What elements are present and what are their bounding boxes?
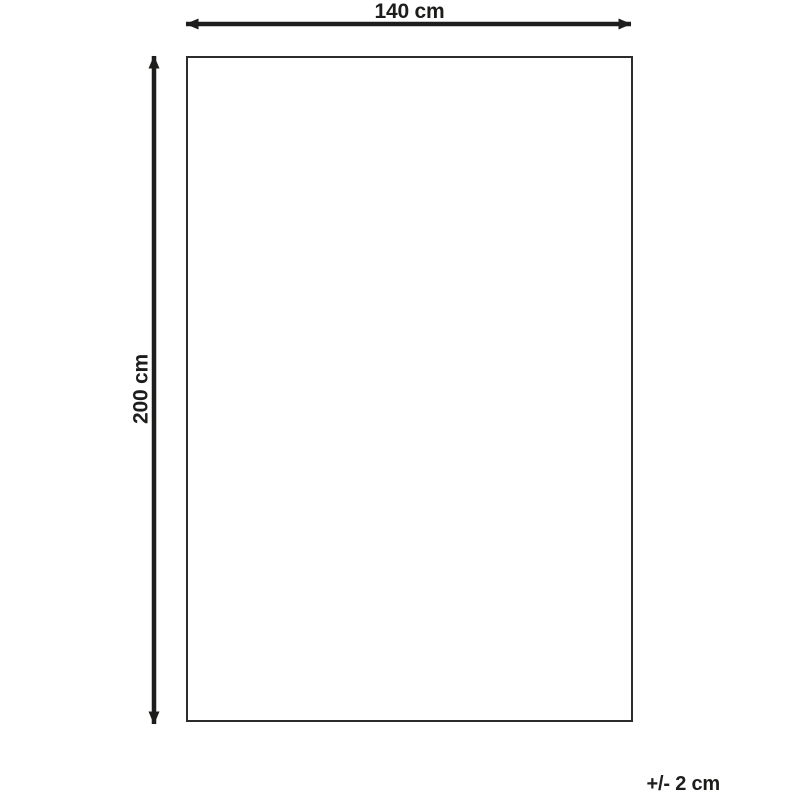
- diagram-canvas: [0, 0, 800, 800]
- product-dimension-diagram: 140 cm 200 cm +/- 2 cm: [0, 0, 800, 800]
- tolerance-label: +/- 2 cm: [647, 774, 720, 794]
- height-dimension-label: 200 cm: [131, 354, 152, 424]
- product-outline-rectangle: [187, 57, 632, 721]
- width-dimension-label: 140 cm: [187, 1, 632, 22]
